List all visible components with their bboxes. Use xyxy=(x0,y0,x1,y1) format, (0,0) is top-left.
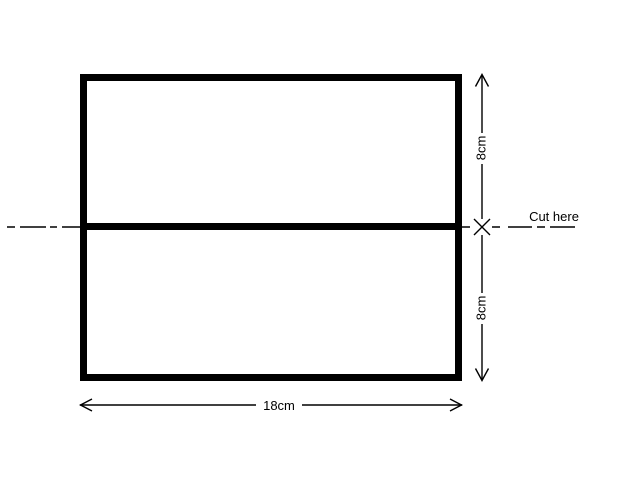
cut-intersection-x-icon xyxy=(474,219,490,235)
cut-here-label: Cut here xyxy=(529,209,579,224)
width-label: 18cm xyxy=(263,398,295,413)
bottom-height-label: 8cm xyxy=(474,296,489,321)
top-height-label: 8cm xyxy=(474,136,489,161)
diagram-canvas: 8cm 8cm 18cm Cut here xyxy=(0,0,624,485)
rectangle-cut-diagram: 8cm 8cm 18cm Cut here xyxy=(0,0,624,485)
